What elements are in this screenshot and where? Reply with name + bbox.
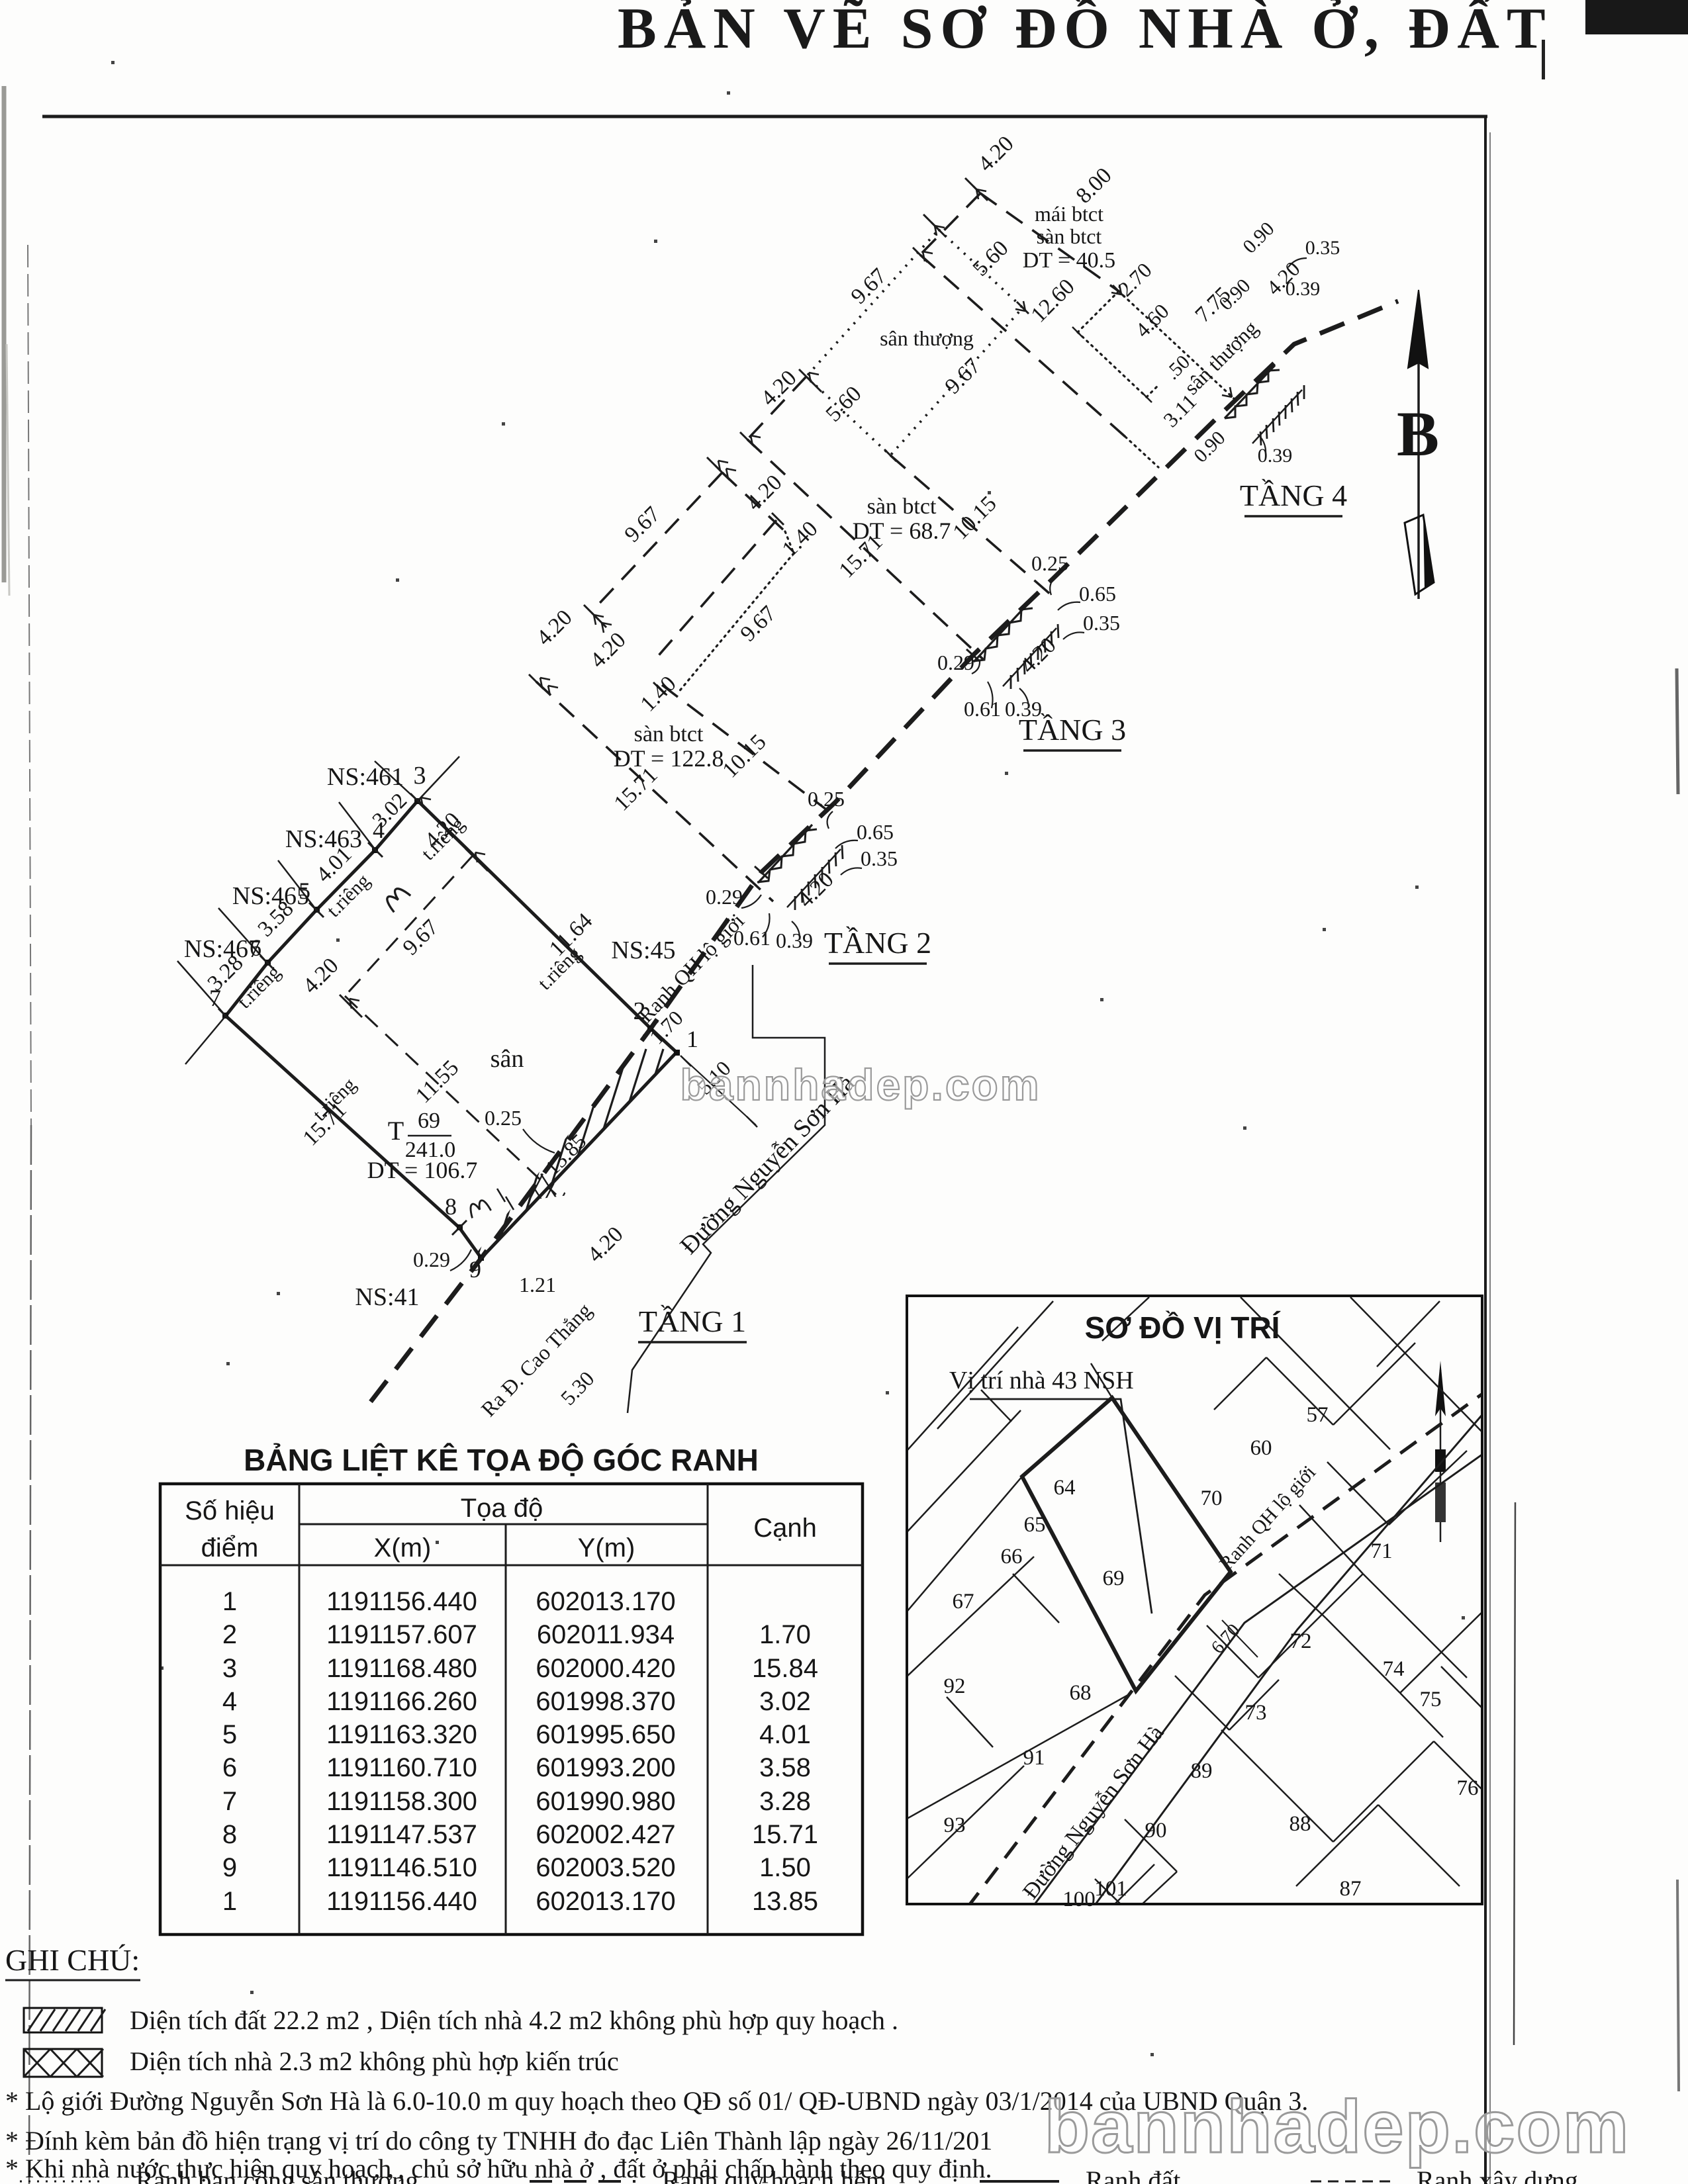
svg-text:602013.170: 602013.170: [536, 1587, 675, 1616]
svg-text:1: 1: [686, 1026, 698, 1052]
svg-text:X(m): X(m): [374, 1533, 432, 1563]
svg-text:1191156.440: 1191156.440: [326, 1887, 477, 1916]
svg-text:0.61: 0.61: [964, 697, 1001, 721]
svg-text:Vị trí nhà 43 NSH: Vị trí nhà 43 NSH: [949, 1367, 1134, 1394]
svg-text:DT = 68.7: DT = 68.7: [853, 518, 951, 544]
svg-text:1191160.710: 1191160.710: [326, 1753, 477, 1782]
svg-text:NS:45: NS:45: [611, 936, 675, 964]
svg-text:TẦNG 1: TẦNG 1: [639, 1304, 746, 1338]
svg-text:601990.980: 601990.980: [536, 1787, 675, 1816]
svg-text:sân thượng: sân thượng: [880, 326, 974, 350]
svg-text:9: 9: [469, 1256, 481, 1283]
svg-text:0.25: 0.25: [808, 787, 845, 811]
svg-text:13.85: 13.85: [752, 1887, 818, 1916]
svg-text:69: 69: [1103, 1567, 1125, 1590]
svg-text:NS:463: NS:463: [285, 825, 362, 853]
svg-text:1191146.510: 1191146.510: [326, 1853, 477, 1882]
svg-text:bannhadep.com: bannhadep.com: [1045, 2085, 1630, 2168]
svg-text:0.29: 0.29: [413, 1248, 450, 1271]
svg-text:93: 93: [944, 1813, 966, 1837]
svg-text:71: 71: [1371, 1539, 1393, 1563]
svg-text:1191166.260: 1191166.260: [326, 1687, 477, 1716]
svg-text:5: 5: [299, 878, 310, 904]
svg-text:601998.370: 601998.370: [536, 1687, 675, 1716]
svg-text:87: 87: [1340, 1877, 1362, 1901]
svg-text:602002.427: 602002.427: [536, 1820, 675, 1849]
svg-text:DT = 40.5: DT = 40.5: [1023, 248, 1115, 273]
svg-text:sân: sân: [491, 1045, 524, 1073]
svg-text:70: 70: [1201, 1486, 1223, 1510]
svg-text:Cạnh: Cạnh: [753, 1514, 817, 1543]
svg-text:mái btct: mái btct: [1035, 202, 1103, 226]
svg-text:Ranh đất: Ranh đất: [1086, 2165, 1180, 2184]
svg-text:64: 64: [1054, 1476, 1076, 1500]
svg-text:0.35: 0.35: [861, 846, 898, 870]
svg-text:3.28: 3.28: [759, 1787, 811, 1816]
svg-text:92: 92: [944, 1674, 966, 1698]
svg-text:bannhadep.com: bannhadep.com: [680, 1060, 1041, 1109]
svg-text:BẢN VẼ SƠ ĐỒ NHÀ Ở, ĐẤT: BẢN VẼ SƠ ĐỒ NHÀ Ở, ĐẤT: [618, 0, 1553, 61]
svg-text:602011.934: 602011.934: [537, 1620, 675, 1649]
svg-text:1191156.440: 1191156.440: [326, 1587, 477, 1616]
svg-text:65: 65: [1024, 1513, 1046, 1537]
svg-text:NS:461: NS:461: [327, 763, 404, 791]
svg-text:T: T: [388, 1116, 404, 1146]
svg-text:60: 60: [1250, 1436, 1272, 1460]
svg-text:sàn btct: sàn btct: [634, 722, 704, 747]
svg-text:8: 8: [222, 1820, 237, 1849]
svg-text:1.21: 1.21: [519, 1273, 556, 1297]
svg-text:BẢNG LIỆT KÊ TỌA ĐỘ GÓC RANH: BẢNG LIỆT KÊ TỌA ĐỘ GÓC RANH: [244, 1443, 759, 1477]
svg-text:15.84: 15.84: [752, 1654, 818, 1683]
svg-text:0.35: 0.35: [1305, 237, 1340, 259]
svg-text:9: 9: [222, 1853, 237, 1882]
svg-text:1.50: 1.50: [759, 1853, 811, 1882]
svg-text:0.35: 0.35: [1083, 611, 1120, 635]
svg-text:3: 3: [414, 762, 426, 790]
svg-text:sàn btct: sàn btct: [867, 494, 937, 519]
svg-text:601993.200: 601993.200: [536, 1753, 675, 1782]
svg-text:0.39: 0.39: [1286, 278, 1321, 300]
svg-text:5: 5: [222, 1720, 237, 1749]
svg-text:74: 74: [1383, 1657, 1405, 1681]
svg-text:1: 1: [222, 1587, 237, 1616]
svg-text:0.29: 0.29: [706, 885, 743, 909]
svg-text:Ranh xây dựng: Ranh xây dựng: [1417, 2165, 1578, 2184]
svg-text:602013.170: 602013.170: [536, 1887, 675, 1916]
svg-text:NS:41: NS:41: [355, 1283, 419, 1311]
svg-text:TẦNG 2: TẦNG 2: [824, 925, 931, 960]
svg-text:601995.650: 601995.650: [536, 1720, 675, 1749]
svg-text:DT = 122.8: DT = 122.8: [614, 745, 724, 772]
svg-text:DT = 106.7: DT = 106.7: [367, 1157, 478, 1183]
svg-text:67: 67: [953, 1590, 974, 1614]
svg-text:1191157.607: 1191157.607: [326, 1620, 477, 1649]
svg-text:sàn btct: sàn btct: [1037, 224, 1102, 248]
svg-text:73: 73: [1245, 1701, 1267, 1725]
svg-text:0.39: 0.39: [1258, 445, 1293, 467]
svg-text:Số hiệu: Số hiệu: [185, 1496, 275, 1525]
svg-text:66: 66: [1001, 1545, 1023, 1569]
svg-text:SƠ ĐỒ VỊ TRÍ: SƠ ĐỒ VỊ TRÍ: [1085, 1310, 1281, 1345]
svg-text:Ranh quy hoạch hẻm: Ranh quy hoạch hẻm: [662, 2165, 886, 2184]
svg-text:Diện tích đất 22.2 m2 , Diện: Diện tích đất 22.2 m2 , Diện tích nhà 4.…: [130, 2005, 898, 2035]
svg-text:68: 68: [1070, 1681, 1092, 1705]
svg-text:90: 90: [1145, 1819, 1167, 1843]
svg-text:6: 6: [222, 1753, 237, 1782]
svg-text:0.29: 0.29: [937, 651, 974, 674]
svg-text:3.58: 3.58: [759, 1753, 811, 1782]
svg-text:điểm: điểm: [201, 1533, 259, 1563]
svg-text:7: 7: [222, 1787, 237, 1816]
svg-text:B: B: [1397, 398, 1439, 469]
svg-text:91: 91: [1023, 1746, 1045, 1770]
svg-text:8: 8: [445, 1193, 457, 1220]
svg-text:1: 1: [222, 1887, 237, 1916]
svg-text:4: 4: [222, 1687, 237, 1716]
svg-text:1191158.300: 1191158.300: [326, 1787, 477, 1816]
svg-text:6: 6: [250, 934, 261, 961]
svg-text:0.25: 0.25: [485, 1106, 522, 1130]
svg-text:1191163.320: 1191163.320: [326, 1720, 477, 1749]
svg-text:602000.420: 602000.420: [536, 1654, 675, 1683]
svg-text:GHI CHÚ:: GHI CHÚ:: [5, 1943, 140, 1977]
svg-text:Diện tích nhà 2.3 m2 không ph: Diện tích nhà 2.3 m2 không phù hợp kiến …: [130, 2046, 619, 2076]
svg-text:76: 76: [1457, 1776, 1479, 1800]
svg-text:57: 57: [1307, 1403, 1329, 1427]
svg-text:15.71: 15.71: [752, 1820, 818, 1849]
svg-text:3.02: 3.02: [759, 1687, 811, 1716]
svg-text:Ranh ban công sân thượng: Ranh ban công sân thượng: [136, 2165, 418, 2184]
svg-text:1191168.480: 1191168.480: [326, 1654, 477, 1683]
svg-text:3: 3: [222, 1654, 237, 1683]
svg-text:TẦNG 3: TẦNG 3: [1019, 712, 1126, 747]
svg-text:100: 100: [1062, 1888, 1096, 1911]
svg-text:Y(m): Y(m): [578, 1533, 635, 1563]
svg-text:Tọa độ: Tọa độ: [461, 1494, 543, 1523]
svg-text:75: 75: [1420, 1688, 1442, 1711]
svg-text:0.65: 0.65: [857, 820, 894, 844]
svg-text:* Đính kèm bản đồ hiện trạng v: * Đính kèm bản đồ hiện trạng vị trí do c…: [5, 2126, 992, 2156]
svg-text:69: 69: [418, 1109, 440, 1133]
svg-text:0.39: 0.39: [776, 929, 813, 952]
svg-text:4.01: 4.01: [759, 1720, 811, 1749]
svg-text:0.61: 0.61: [733, 926, 771, 950]
svg-text:88: 88: [1289, 1812, 1311, 1836]
svg-text:1.70: 1.70: [759, 1620, 811, 1649]
svg-text:101: 101: [1094, 1877, 1127, 1901]
svg-text:0.65: 0.65: [1079, 582, 1116, 606]
svg-text:72: 72: [1290, 1629, 1312, 1653]
svg-text:0.25: 0.25: [1031, 551, 1068, 575]
svg-text:602003.520: 602003.520: [536, 1853, 675, 1882]
svg-text:2: 2: [222, 1620, 237, 1649]
svg-text:1191147.537: 1191147.537: [326, 1820, 477, 1849]
svg-text:TẦNG 4: TẦNG 4: [1240, 478, 1347, 512]
svg-text:89: 89: [1191, 1759, 1213, 1783]
